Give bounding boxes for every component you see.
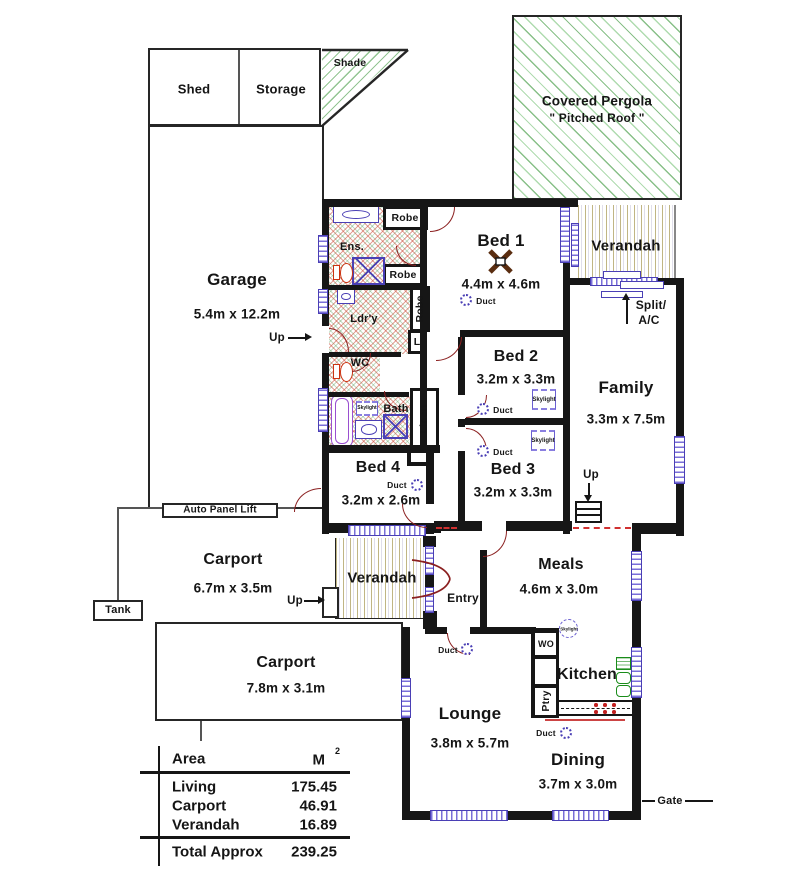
duct-label: Duct — [493, 405, 513, 415]
floor-transition — [573, 527, 631, 529]
fence-line — [642, 800, 655, 802]
wall — [458, 451, 465, 528]
duct-label: Duct — [476, 296, 496, 306]
wall — [426, 527, 434, 534]
pergola-label-1: Covered Pergola — [542, 94, 652, 109]
room-label-kitchen: Kitchen — [557, 666, 617, 684]
duct-label: Duct — [493, 447, 513, 457]
wall-oven-label: WO — [538, 639, 554, 649]
window — [401, 678, 411, 718]
shed-label: Shed — [178, 82, 211, 97]
carport-boundary — [119, 507, 163, 509]
wall — [426, 447, 434, 504]
room-dims-bed4: 3.2m x 2.6m — [342, 493, 421, 508]
cabinet-box — [535, 659, 556, 684]
door-arc — [483, 531, 507, 557]
room-dims-meals: 4.6m x 3.0m — [520, 582, 599, 597]
wall — [329, 445, 440, 453]
wall — [423, 611, 437, 629]
room-dims-bed3: 3.2m x 3.3m — [474, 485, 553, 500]
door-leaf — [315, 326, 329, 353]
table-row-value: 16.89 — [299, 817, 337, 834]
sink-drainer — [616, 657, 631, 670]
laundry-label: Ldr'y — [350, 313, 377, 325]
shed-divider — [238, 50, 240, 124]
verandah-top-edge — [674, 205, 676, 280]
wall — [329, 285, 421, 290]
wall — [563, 278, 593, 285]
room-label-meals: Meals — [538, 556, 583, 574]
up-arrow-garage — [288, 337, 306, 339]
auto-panel-lift-label: Auto Panel Lift — [183, 505, 257, 516]
table-total-value: 239.25 — [291, 844, 337, 861]
storage-label: Storage — [256, 82, 306, 97]
wall — [676, 280, 684, 536]
room-dims-dining: 3.7m x 3.0m — [539, 777, 618, 792]
linen-label: Linen — [418, 405, 430, 434]
room-label-bed2: Bed 2 — [494, 348, 539, 366]
duct-icon — [460, 294, 472, 306]
pergola-label-2: " Pitched Roof " — [549, 111, 644, 125]
ensuite-label: Ens. — [340, 241, 364, 253]
room-dims-carport2: 7.8m x 3.1m — [247, 681, 326, 696]
room-label-family: Family — [598, 378, 653, 398]
table-row-value: 46.91 — [299, 798, 337, 815]
duct-label: Duct — [387, 480, 407, 490]
window — [318, 289, 328, 314]
split-ac-label-1: Split/ — [636, 298, 667, 312]
window — [631, 551, 642, 601]
fence-line — [685, 800, 713, 802]
window — [318, 388, 328, 432]
room-label-lounge: Lounge — [439, 704, 502, 724]
window — [631, 647, 642, 698]
room-label-garage: Garage — [207, 270, 267, 290]
split-ac-label-2: A/C — [638, 313, 659, 327]
table-row-label: Carport — [172, 798, 226, 815]
window — [430, 810, 508, 821]
arrow-up-icon — [622, 293, 630, 300]
carport-boundary — [117, 507, 119, 602]
arrow-right-icon — [305, 333, 312, 341]
skylight-label: Skylight — [532, 397, 555, 403]
up-arrow-verandah — [304, 600, 319, 602]
gate-label: Gate — [657, 795, 682, 807]
table-row-label: Living — [172, 779, 216, 796]
wall — [506, 521, 572, 531]
wall — [480, 550, 487, 634]
table-header-unit: M — [313, 752, 326, 769]
bench-edge — [545, 719, 625, 721]
window — [674, 436, 685, 484]
table-row-label: Verandah — [172, 817, 240, 834]
table-header-area: Area — [172, 751, 205, 768]
duct-icon — [411, 479, 423, 491]
duct-label: Duct — [438, 645, 458, 655]
robe-label: Robe — [414, 295, 426, 322]
verandah-mid-label: Verandah — [347, 570, 416, 587]
room-dims-garage: 5.4m x 12.2m — [194, 307, 280, 322]
sink-bowl-icon — [616, 685, 631, 697]
room-dims-carport1: 6.7m x 3.5m — [194, 581, 273, 596]
linen-l-label: L — [414, 336, 421, 348]
skylight-label: Skylight — [357, 405, 376, 411]
wall — [460, 330, 570, 337]
room-label-bed1: Bed 1 — [477, 231, 524, 251]
wc-label: WC — [351, 357, 370, 369]
shower-icon — [352, 257, 385, 285]
window — [560, 207, 570, 263]
shade-label: Shade — [334, 57, 367, 69]
table-hline — [140, 836, 350, 839]
wall — [465, 418, 570, 425]
bathtub-icon — [331, 394, 353, 448]
cooktop-icon — [612, 710, 616, 714]
pantry-label: Ptry — [540, 690, 552, 711]
entry-label: Entry — [447, 591, 479, 605]
floor-plan: Shed Storage Shade Garage 5.4m x 12.2m C… — [0, 0, 800, 871]
toilet-icon — [333, 263, 353, 283]
up-label-verandah: Up — [287, 595, 303, 607]
wall — [632, 523, 684, 534]
ceiling-fan-icon — [487, 248, 514, 275]
room-label-bed4: Bed 4 — [356, 459, 401, 477]
carport-boundary — [278, 507, 295, 509]
room-label-carport2: Carport — [256, 654, 315, 672]
door-arc — [430, 207, 455, 232]
window — [552, 810, 609, 821]
skylight-label: Skylight — [560, 627, 578, 632]
table-row-value: 175.45 — [291, 779, 337, 796]
tank-label: Tank — [105, 604, 131, 616]
window — [571, 223, 579, 267]
ac-unit — [620, 281, 664, 289]
wall — [458, 419, 465, 427]
room-dims-bed2: 3.2m x 3.3m — [477, 372, 556, 387]
shower-icon — [383, 414, 408, 439]
cooktop-icon — [603, 703, 607, 707]
verandah-top-label: Verandah — [591, 238, 660, 255]
table-total-label: Total Approx — [172, 844, 263, 861]
table-header-unit-sup: 2 — [335, 746, 340, 756]
duct-icon — [477, 445, 489, 457]
up-label-family: Up — [583, 469, 599, 481]
wall — [402, 627, 410, 820]
room-label-bed3: Bed 3 — [491, 461, 536, 479]
duct-icon — [477, 403, 489, 415]
skylight-label: Skylight — [531, 438, 554, 444]
vanity-basin — [355, 420, 382, 439]
sink-bowl-icon — [616, 672, 631, 684]
robe-label: Robe — [391, 212, 418, 224]
robe-label: Robe — [389, 269, 416, 281]
split-ac-arrow — [626, 300, 628, 324]
room-dims-family: 3.3m x 7.5m — [587, 412, 666, 427]
duct-icon — [461, 643, 473, 655]
room-label-dining: Dining — [551, 750, 605, 770]
boundary-tick — [200, 721, 202, 741]
laundry-trough — [337, 289, 355, 304]
cooktop-icon — [594, 703, 598, 707]
room-dims-bed1: 4.4m x 4.6m — [462, 277, 541, 292]
cooktop-icon — [612, 703, 616, 707]
duct-label: Duct — [536, 728, 556, 738]
stairs-icon — [575, 501, 602, 523]
window — [348, 525, 426, 536]
duct-icon — [560, 727, 572, 739]
table-hline — [140, 771, 350, 774]
table-vline — [158, 746, 160, 866]
cooktop-icon — [594, 710, 598, 714]
wall — [322, 199, 578, 207]
room-label-carport1: Carport — [203, 551, 262, 569]
up-label-garage: Up — [269, 332, 285, 344]
cooktop-icon — [603, 710, 607, 714]
room-dims-lounge: 3.8m x 5.7m — [431, 736, 510, 751]
arrow-right-icon — [318, 596, 325, 604]
vanity-basin — [333, 206, 379, 223]
bath-label: Bath — [383, 403, 408, 415]
window — [318, 235, 328, 263]
floor-transition — [436, 527, 457, 529]
ac-unit — [603, 271, 641, 279]
